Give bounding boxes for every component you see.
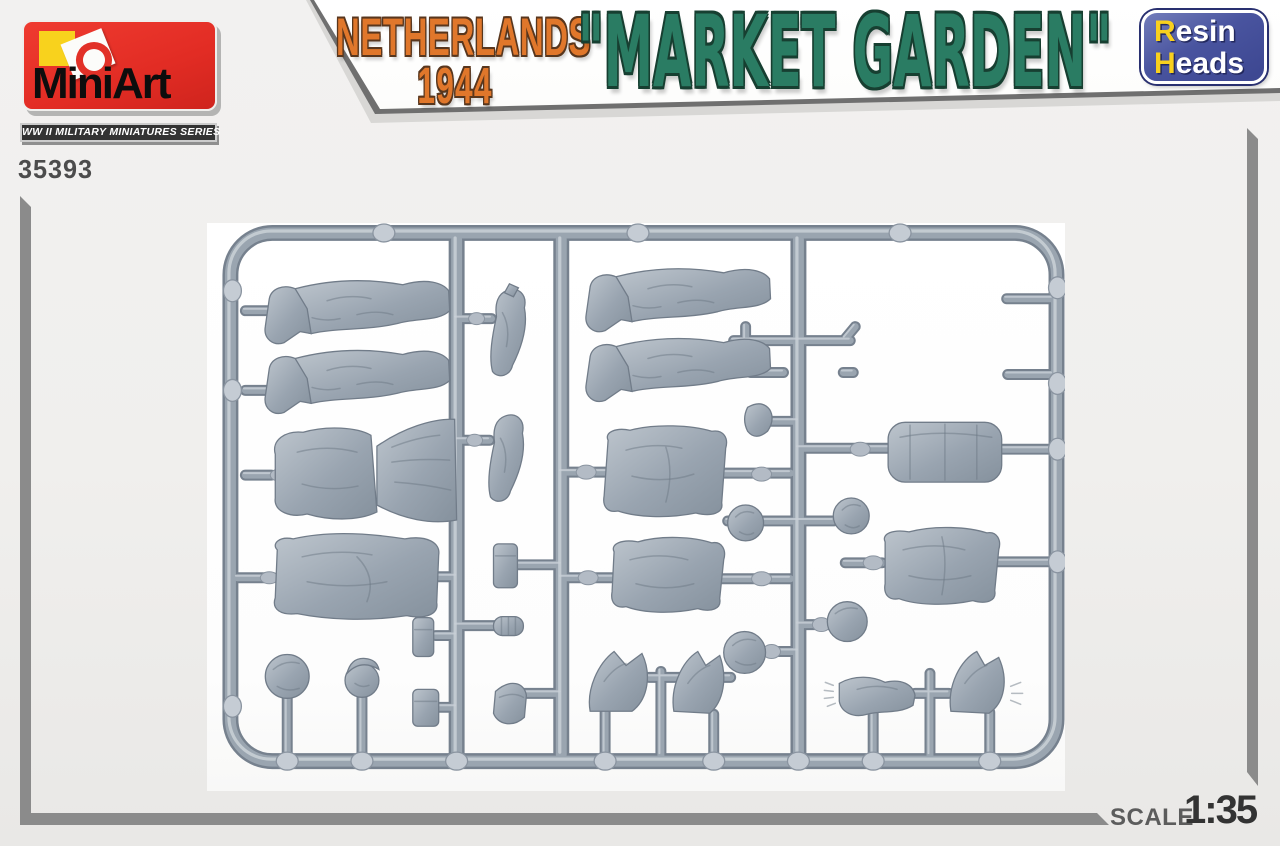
part-pouch-2	[413, 618, 434, 657]
scale-value: 1:35	[1184, 790, 1256, 830]
part-bent-arm-1	[589, 651, 647, 711]
part-torso-2	[274, 534, 438, 620]
part-legs-pair-4	[586, 339, 771, 402]
part-grenade-head	[494, 617, 524, 636]
part-torso-5	[884, 527, 999, 604]
resin-heads-badge: Resin Heads	[1141, 10, 1267, 84]
accent-bar-left	[20, 196, 31, 825]
part-bent-arm-3	[950, 651, 1022, 713]
badge-line-heads: Heads	[1154, 48, 1264, 80]
part-legs-pair-1	[265, 281, 450, 344]
part-bent-arm-2	[673, 651, 724, 713]
title-netherlands-1944: NETHERLANDS 1944	[336, 11, 574, 111]
accent-bar-right	[1247, 128, 1258, 786]
scale-label: SCALE	[1110, 804, 1194, 832]
part-head-1	[728, 505, 764, 541]
part-helmet-ball-3	[724, 632, 766, 674]
part-pouch-1	[494, 544, 518, 588]
title-market-garden: "MARKET GARDEN"	[578, 3, 1112, 102]
part-helmet-ball-2	[827, 602, 867, 642]
part-pouch-3	[413, 689, 439, 726]
series-bar: WW II MILITARY MINIATURES SERIES	[20, 123, 217, 142]
miniart-logo: MiniArt	[22, 20, 217, 111]
part-beret	[745, 404, 772, 436]
part-head-2	[833, 498, 869, 534]
part-arm-with-hand	[824, 677, 915, 715]
part-arm-vertical-1	[491, 284, 526, 376]
part-tool-cover	[494, 683, 527, 723]
part-head-beret	[345, 658, 379, 697]
part-torso-4	[612, 537, 725, 612]
kit-number: 35393	[18, 154, 93, 185]
part-helmet-ball-1	[265, 654, 309, 698]
accent-bar-bottom	[20, 813, 1109, 825]
title-year: 1944	[336, 60, 574, 111]
part-torso-3	[604, 426, 727, 517]
brand-text: MiniArt	[32, 59, 170, 109]
badge-line-resin: Resin	[1154, 16, 1264, 48]
sprue-drawing	[207, 223, 1065, 791]
part-rolled-smock	[888, 422, 1002, 482]
sprue-photo	[207, 223, 1065, 791]
part-arm-vertical-2	[489, 415, 524, 501]
part-legs-pair-2	[265, 351, 450, 414]
part-torso-flared-smock	[275, 419, 457, 521]
